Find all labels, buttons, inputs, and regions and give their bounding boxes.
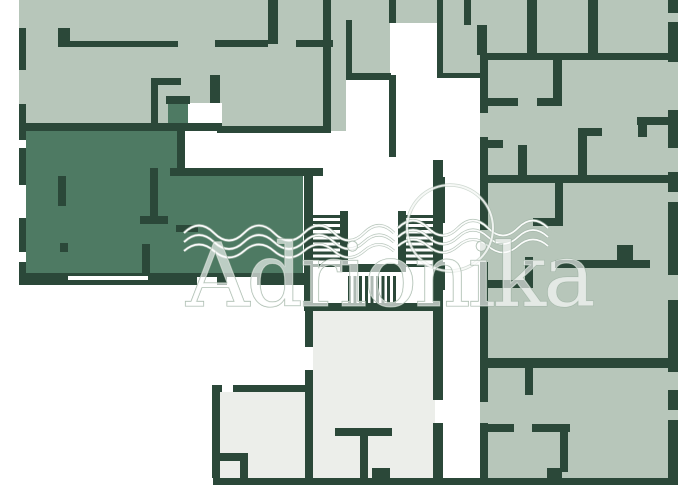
- wall-segment: [547, 468, 562, 478]
- wall-segment: [433, 423, 443, 478]
- wall-segment: [485, 280, 533, 288]
- wall-segment: [578, 128, 602, 136]
- wall-segment: [170, 168, 323, 176]
- wall-segment: [389, 75, 396, 157]
- wall-segment: [480, 60, 488, 113]
- wall-segment: [464, 0, 471, 25]
- apartment-fill-bottom-left: [220, 392, 305, 478]
- stair-newel-wall: [398, 211, 406, 272]
- wall-segment: [177, 131, 185, 176]
- wall-segment: [533, 218, 563, 226]
- wall-segment: [323, 0, 331, 133]
- wall-segment: [372, 468, 390, 478]
- exterior-wall-right: [668, 110, 678, 148]
- wall-segment: [588, 0, 598, 53]
- wall-segment: [210, 75, 220, 103]
- corridor-area: [437, 78, 443, 160]
- exterior-wall-bottom: [213, 478, 678, 485]
- exterior-wall-bottom: [19, 273, 310, 285]
- wall-segment: [486, 424, 514, 432]
- wall-segment: [217, 126, 323, 133]
- wall-segment: [166, 96, 190, 104]
- floor-plan: Adrionika: [0, 0, 692, 485]
- exterior-wall-right: [668, 0, 678, 13]
- wall-segment: [433, 310, 443, 400]
- wall-segment: [212, 392, 220, 478]
- wall-segment: [58, 41, 178, 47]
- window-gap: [197, 277, 217, 285]
- wall-segment: [437, 0, 443, 78]
- window-gap: [68, 276, 148, 280]
- wall-segment: [151, 78, 158, 125]
- corridor-area: [390, 23, 437, 160]
- wall-segment: [60, 243, 68, 252]
- wall-segment: [488, 358, 675, 368]
- wall-segment: [477, 25, 487, 55]
- wall-segment: [150, 168, 158, 216]
- stair-newel-wall: [340, 211, 348, 272]
- stairwell-wall: [304, 168, 313, 311]
- exterior-wall-left: [19, 218, 26, 252]
- wall-segment: [389, 0, 396, 23]
- wall-segment: [151, 78, 181, 85]
- wall-segment: [335, 428, 392, 436]
- wall-segment: [443, 73, 480, 78]
- wall-segment: [617, 245, 633, 260]
- corridor-area: [443, 78, 480, 478]
- wall-segment: [525, 368, 533, 395]
- exterior-wall-right: [668, 300, 678, 372]
- exterior-wall-right: [668, 420, 678, 478]
- wall-segment: [488, 98, 518, 106]
- exterior-wall-left: [19, 28, 26, 70]
- exterior-wall-right: [668, 390, 678, 410]
- window-gap: [227, 277, 257, 285]
- exterior-wall-right: [668, 172, 678, 192]
- exterior-wall-right: [668, 22, 678, 62]
- wall-segment: [518, 145, 527, 183]
- stair-newel-wall: [340, 264, 406, 272]
- wall-segment: [525, 257, 533, 280]
- exterior-wall-right: [668, 202, 678, 275]
- stair-treads-bottom: [348, 276, 398, 303]
- wall-segment: [176, 225, 198, 232]
- exterior-wall-left: [19, 104, 26, 140]
- wall-segment: [532, 424, 570, 432]
- wall-segment: [488, 140, 503, 148]
- wall-segment: [553, 60, 562, 106]
- wall-segment: [555, 260, 650, 268]
- corridor-area: [346, 80, 389, 133]
- apartment-fill-bottom-center: [313, 310, 435, 478]
- wall-segment: [240, 453, 248, 478]
- wall-segment: [142, 244, 150, 273]
- door-opening: [188, 103, 222, 124]
- stair-treads-right: [406, 215, 433, 268]
- wall-segment: [305, 311, 313, 347]
- wall-segment: [346, 73, 391, 80]
- wall-segment: [480, 137, 488, 230]
- wall-segment: [360, 436, 368, 478]
- wall-segment: [578, 128, 587, 183]
- wall-segment: [140, 216, 168, 224]
- stairwell-wall: [304, 303, 443, 311]
- wall-segment: [480, 53, 678, 60]
- exterior-wall-left: [19, 148, 26, 185]
- stair-treads-left: [313, 215, 340, 268]
- wall-segment: [58, 176, 66, 206]
- wall-segment: [215, 40, 268, 47]
- wall-segment: [19, 123, 222, 131]
- wall-segment: [437, 177, 445, 223]
- door-gap: [222, 385, 233, 392]
- wall-segment: [268, 0, 278, 44]
- wall-segment: [560, 432, 568, 472]
- wall-segment: [638, 117, 647, 137]
- wall-segment: [346, 20, 352, 77]
- wall-segment: [527, 0, 537, 53]
- wall-segment: [437, 262, 445, 290]
